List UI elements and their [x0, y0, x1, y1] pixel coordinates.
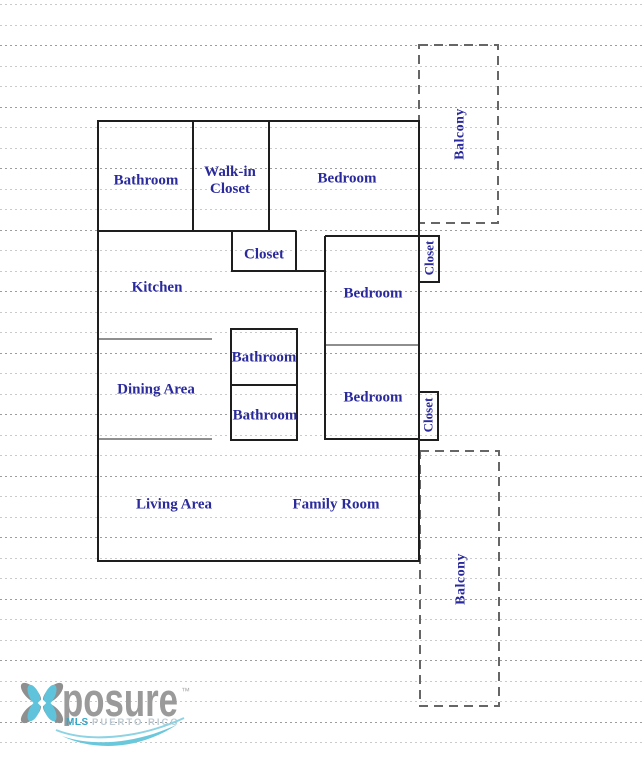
- trademark-symbol: ™: [181, 686, 190, 696]
- mls-text: MLS: [66, 717, 89, 728]
- xposure-flower-icon: [18, 680, 67, 726]
- room-label-closet-side-top: Closet: [421, 241, 438, 276]
- floor-plan-page: Bathroom Walk-in Closet Bedroom Closet K…: [0, 0, 643, 759]
- room-label-closet-side-bottom: Closet: [420, 398, 437, 433]
- floor-plan-drawing: [0, 0, 643, 759]
- room-label-bedroom-top: Bedroom: [318, 171, 377, 188]
- room-label-bedroom-lower: Bedroom: [344, 390, 403, 407]
- region-text: PUERTO RICO: [92, 717, 180, 728]
- room-label-walk-in-closet: Walk-in Closet: [204, 164, 256, 198]
- walk-in-closet-line2: Closet: [204, 181, 256, 198]
- room-label-balcony-bottom: Balcony: [453, 553, 470, 605]
- room-label-dining: Dining Area: [117, 382, 195, 399]
- room-label-bathroom-upper: Bathroom: [232, 350, 297, 367]
- room-label-bedroom-mid: Bedroom: [344, 286, 403, 303]
- walk-in-closet-line1: Walk-in: [204, 164, 256, 181]
- xposure-logo-graphic: posure ™ MLS PUERTO RICO: [16, 680, 211, 755]
- room-label-balcony-top: Balcony: [452, 108, 469, 160]
- room-label-kitchen: Kitchen: [132, 280, 183, 297]
- room-label-family: Family Room: [292, 497, 379, 514]
- room-label-closet-hall: Closet: [244, 247, 284, 264]
- room-label-bathroom-lower: Bathroom: [233, 408, 298, 425]
- xposure-logo: posure ™ MLS PUERTO RICO: [16, 680, 211, 755]
- room-label-bathroom-main: Bathroom: [114, 173, 179, 190]
- room-label-living: Living Area: [136, 497, 212, 514]
